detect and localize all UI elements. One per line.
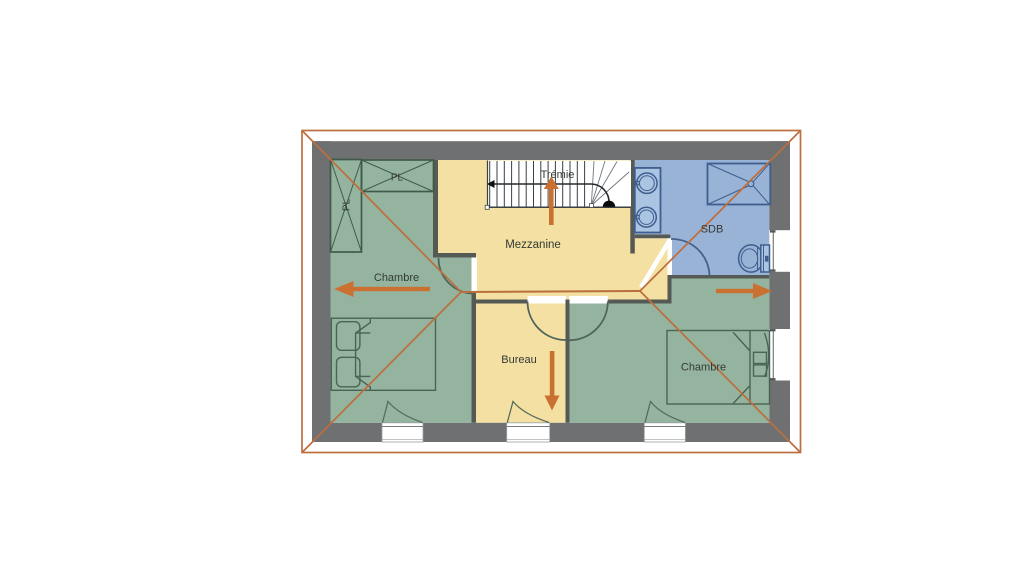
svg-text:Bureau: Bureau: [501, 354, 536, 366]
svg-text:Chambre: Chambre: [681, 362, 726, 374]
svg-text:Trémie: Trémie: [541, 169, 575, 181]
svg-text:PL: PL: [391, 172, 404, 183]
svg-text:SDB: SDB: [701, 224, 724, 236]
svg-text:PL: PL: [341, 198, 352, 211]
svg-text:Mezzanine: Mezzanine: [505, 239, 561, 251]
svg-text:Chambre: Chambre: [374, 272, 419, 284]
